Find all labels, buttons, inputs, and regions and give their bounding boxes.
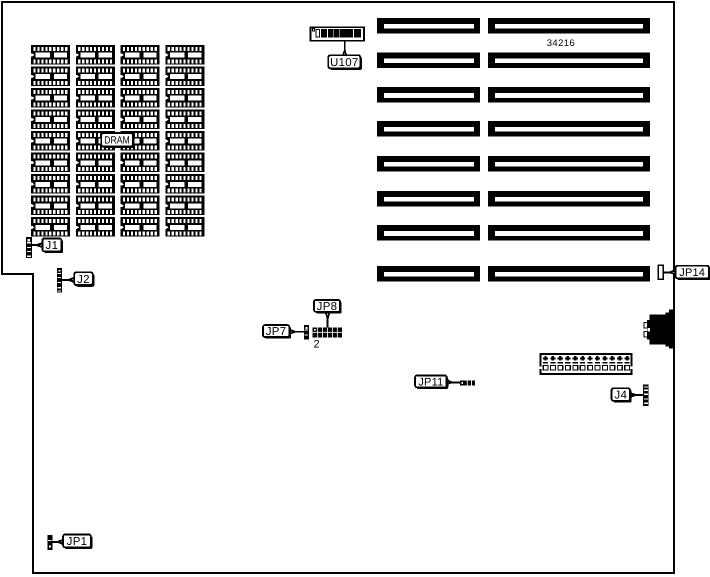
svg-text:JP14: JP14 — [679, 267, 705, 279]
svg-text:J1: J1 — [46, 240, 59, 252]
svg-text:JP11: JP11 — [418, 376, 443, 388]
svg-text:34216: 34216 — [547, 38, 575, 49]
svg-text:JP8: JP8 — [317, 301, 338, 313]
svg-text:JP7: JP7 — [266, 326, 287, 338]
svg-text:U107: U107 — [330, 57, 359, 69]
svg-text:J2: J2 — [77, 274, 90, 286]
svg-text:DRAM: DRAM — [104, 135, 130, 147]
svg-text:2: 2 — [314, 338, 320, 350]
svg-text:JP1: JP1 — [67, 536, 88, 548]
svg-text:J4: J4 — [614, 390, 627, 402]
